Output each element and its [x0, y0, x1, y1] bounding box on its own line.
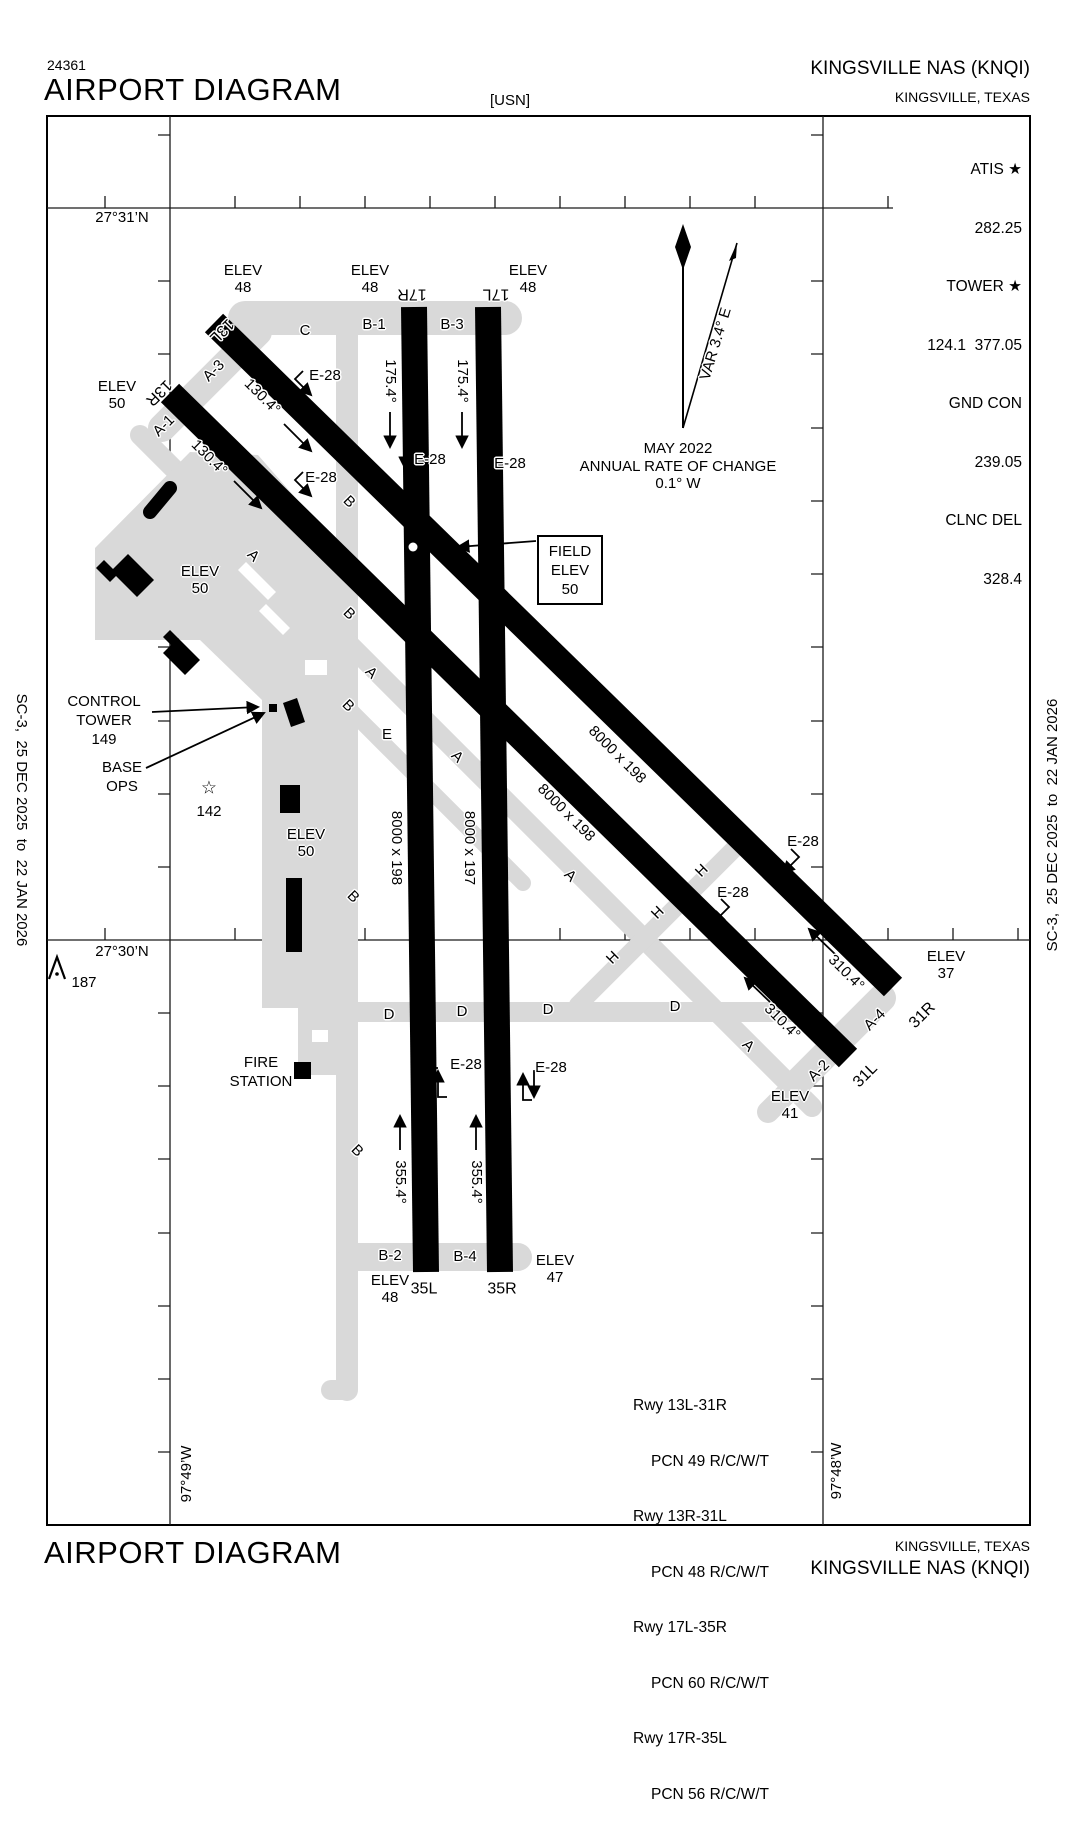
hold-arrow-8 [523, 1074, 532, 1100]
control-tower-label: CONTROL TOWER 149 [67, 692, 140, 749]
obstruction-elevation: 187 [71, 975, 96, 991]
airport-map-graphics [0, 0, 1075, 1647]
control-tower-arrow [152, 707, 258, 712]
page-title: AIRPORT DIAGRAM [44, 72, 341, 108]
pcn-line: PCN 49 R/C/W/T [633, 1453, 769, 1472]
hold-marking-e28: E-28 [535, 1060, 567, 1076]
runway-end-35r: 35R [487, 1282, 516, 1299]
lat-label-top: 27°31’N [95, 210, 149, 226]
taxiway-label-e: E [382, 727, 392, 743]
tank-building [286, 878, 302, 952]
hold-marking-e28: E-28 [717, 885, 749, 901]
gnd-con-label: GND CON [927, 394, 1022, 414]
runway-17l-35r [488, 307, 500, 1272]
magvar-rate-2: 0.1° W [655, 476, 700, 492]
fire-station-building [294, 1062, 311, 1079]
runway-end-35l: 35L [411, 1282, 438, 1299]
edge-banner-left: SC-3, 25 DEC 2025 to 22 JAN 2026 [13, 694, 29, 947]
field-elev-point [409, 543, 418, 552]
magvar-rate-1: ANNUAL RATE OF CHANGE [580, 459, 777, 475]
elev-17r: ELEV48 [351, 262, 389, 296]
elev-17l: ELEV48 [509, 262, 547, 296]
clnc-del-freq: 328.4 [927, 570, 1022, 590]
obstruction-symbol [49, 957, 65, 979]
hold-marking-e28: E-28 [450, 1057, 482, 1073]
pcn-data-block: Rwy 13L-31R PCN 49 R/C/W/T Rwy 13R-31L P… [633, 1360, 769, 1823]
taxiway-label-b3: B-3 [440, 317, 463, 333]
elev-13r: ELEV50 [98, 378, 136, 412]
elev-31r: ELEV37 [927, 948, 965, 982]
beacon-star-icon: ☆ [201, 779, 217, 798]
chart-number: 24361 [47, 57, 86, 73]
atis-freq: 282.25 [927, 219, 1022, 239]
org-label: [USN] [490, 93, 530, 109]
airport-city: KINGSVILLE, TEXAS [895, 89, 1030, 105]
hangar-building-2 [163, 638, 200, 675]
elev-tank: ELEV50 [287, 826, 325, 860]
atis-label: ATIS ★ [927, 160, 1022, 180]
comm-frequencies: ATIS ★ 282.25 TOWER ★ 124.1 377.05 GND C… [927, 121, 1022, 609]
apron-building [280, 785, 300, 813]
elev-35l: ELEV48 [371, 1272, 409, 1306]
pcn-line: PCN 60 R/C/W/T [633, 1675, 769, 1694]
taxiway-label-b1: B-1 [362, 317, 385, 333]
footer-title: AIRPORT DIAGRAM [44, 1535, 341, 1571]
lat-top-ticks [105, 196, 888, 208]
lon-label-left: 97°49’W [179, 1446, 195, 1503]
taxiway-label-c: C [300, 323, 311, 339]
heading-175-b: 175.4° [454, 359, 470, 403]
taxiway-label-d: D [384, 1007, 395, 1023]
lat-bottom-ticks [105, 928, 1018, 940]
lon-label-right: 97°48’W [829, 1443, 845, 1500]
hold-marking-e28: E-28 [305, 470, 337, 486]
taxiway-label-d: D [457, 1004, 468, 1020]
lon-left-ticks [158, 135, 170, 1452]
footer-airport: KINGSVILLE NAS (KNQI) [810, 1558, 1030, 1580]
north-arrow-head [675, 224, 691, 270]
gnd-con-freq: 239.05 [927, 453, 1022, 473]
pcn-line: Rwy 13R-31L [633, 1508, 769, 1527]
magvar-date: MAY 2022 [644, 441, 713, 457]
elev-35r: ELEV47 [536, 1252, 574, 1286]
heading-175-a: 175.4° [382, 359, 398, 403]
dim-17r-35l: 8000 x 198 [388, 811, 404, 885]
tower-freq: 124.1 377.05 [927, 336, 1022, 356]
taxiway-label-d: D [670, 999, 681, 1015]
field-elev-line1: FIELD [539, 542, 601, 561]
airport-diagram-page: { "header": { "chart_number": "24361", "… [0, 0, 1075, 1647]
taxiway-label-b2: B-2 [378, 1248, 401, 1264]
tower-label: TOWER ★ [927, 277, 1022, 297]
elev-apron: ELEV50 [181, 563, 219, 597]
field-elev-line2: ELEV [539, 561, 601, 580]
runway-end-17l: 17L [483, 285, 510, 302]
pcn-line: PCN 56 R/C/W/T [633, 1786, 769, 1805]
pcn-line: Rwy 13L-31R [633, 1397, 769, 1416]
heading-355-a: 355.4° [392, 1160, 408, 1204]
hold-marking-e28: E-28 [787, 834, 819, 850]
pcn-line: PCN 48 R/C/W/T [633, 1564, 769, 1583]
hold-marking-e28: E-28 [494, 456, 526, 472]
pcn-line: Rwy 17R-35L [633, 1730, 769, 1749]
footer-city: KINGSVILLE, TEXAS [895, 1538, 1030, 1554]
elev-31l: ELEV41 [771, 1088, 809, 1122]
fire-station-label: FIRE STATION [230, 1053, 293, 1091]
field-elev-box: FIELD ELEV 50 [537, 535, 603, 605]
hold-marking-e28: E-28 [309, 368, 341, 384]
airport-name: KINGSVILLE NAS (KNQI) [810, 58, 1030, 80]
dim-17l-35r: 8000 x 197 [461, 811, 477, 885]
base-ops-label: BASE OPS [102, 758, 142, 796]
control-tower-building [269, 704, 277, 712]
heading-355-b: 355.4° [468, 1160, 484, 1204]
taxiway-label-b4: B-4 [453, 1249, 476, 1265]
hold-marking-e28: E-28 [414, 452, 446, 468]
hold-arrow-7 [438, 1071, 447, 1097]
runway-end-17r: 17R [397, 285, 426, 302]
elev-13l: ELEV48 [224, 262, 262, 296]
pcn-line: Rwy 17L-35R [633, 1619, 769, 1638]
beacon-elevation: 142 [196, 804, 221, 820]
taxiway-label-d: D [543, 1002, 554, 1018]
clnc-del-label: CLNC DEL [927, 511, 1022, 531]
lat-label-bottom: 27°30’N [95, 944, 149, 960]
edge-banner-right: SC-3, 25 DEC 2025 to 22 JAN 2026 [1045, 699, 1061, 952]
field-elev-line3: 50 [539, 580, 601, 599]
lon-right-ticks [811, 135, 823, 1452]
